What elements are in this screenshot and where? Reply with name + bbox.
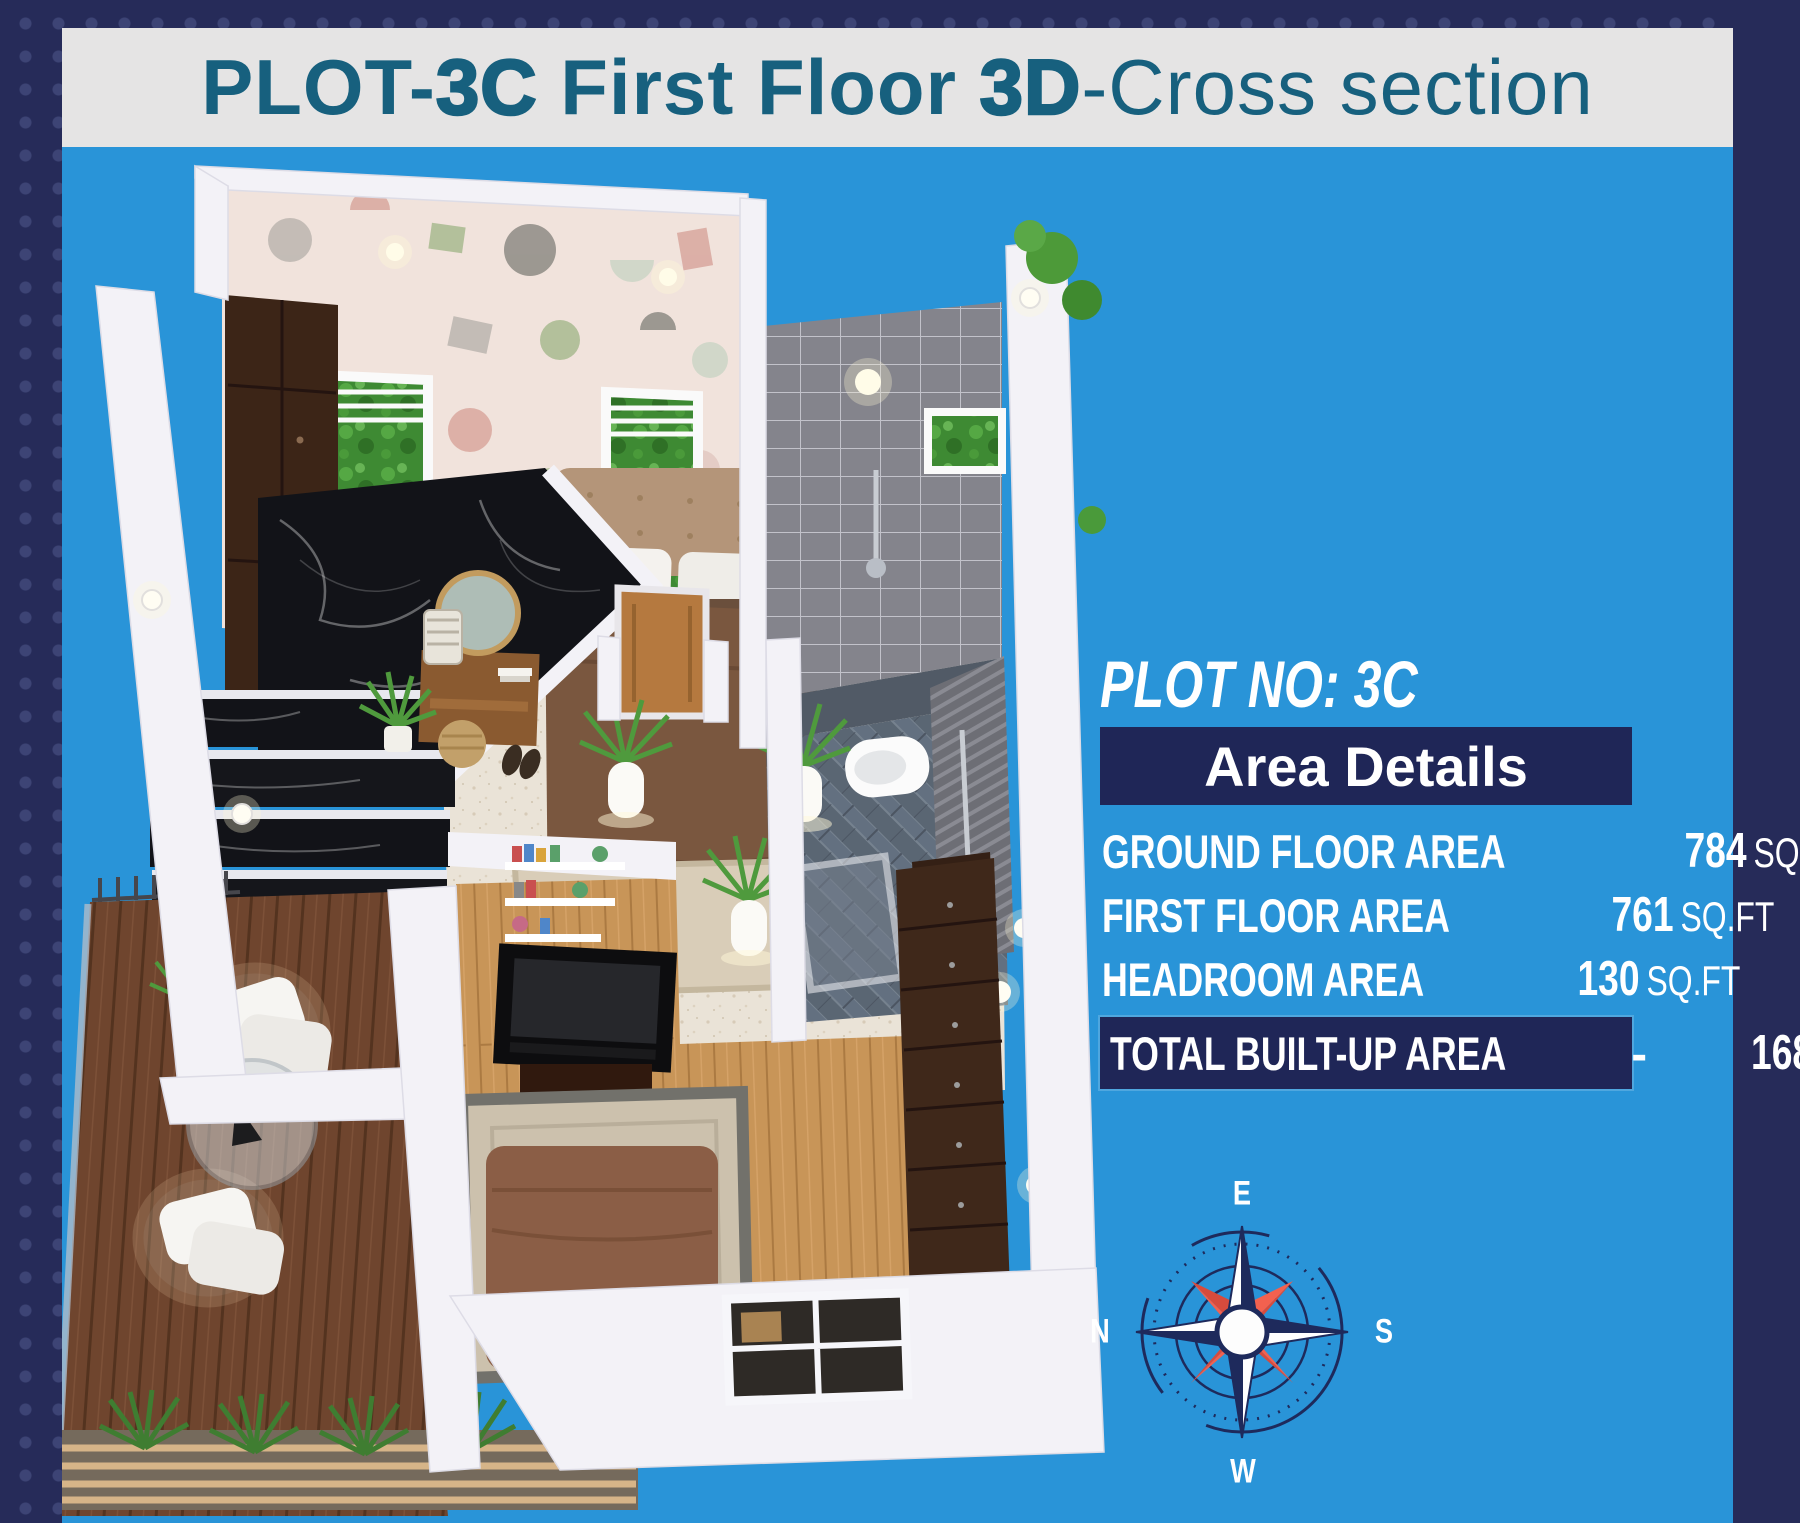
top-border	[0, 0, 1800, 28]
basket-icon	[438, 720, 486, 768]
plot-number-heading: PLOT NO: 3C	[1100, 645, 1632, 723]
poster: PLOT-3C First Floor 3D-Cross section PLO…	[0, 0, 1800, 1523]
door-frame	[598, 636, 620, 720]
area-details-panel: PLOT NO: 3C Area Details GROUND FLOOR AR…	[1100, 645, 1632, 1089]
title-3d: 3D	[980, 43, 1082, 131]
glass-door	[794, 856, 902, 990]
total-dash: -	[1631, 1026, 1647, 1081]
compass-south-label: S	[1375, 1313, 1393, 1352]
area-row-label: GROUND FLOOR AREA	[1102, 824, 1506, 879]
wood-door	[618, 588, 706, 716]
total-label: TOTAL BUILT-UP AREA	[1110, 1026, 1506, 1081]
area-row-first-floor: FIRST FLOOR AREA 761SQ.FT	[1100, 883, 1632, 947]
right-outer-wall	[1006, 240, 1096, 1300]
table-lamp-icon	[424, 610, 462, 664]
compass-rose-icon	[1112, 1202, 1372, 1462]
left-border	[0, 0, 62, 1523]
title-plot-number: 3C	[436, 43, 538, 131]
area-row-value: 784SQ.FT	[1684, 823, 1800, 879]
area-row-value: 761SQ.FT	[1611, 887, 1774, 943]
area-row-label: HEADROOM AREA	[1102, 952, 1424, 1007]
area-row-total: TOTAL BUILT-UP AREA - 1681SQ.FT	[1100, 1017, 1632, 1089]
title-banner: PLOT-3C First Floor 3D-Cross section	[62, 28, 1733, 147]
area-row-ground-floor: GROUND FLOOR AREA 784SQ.FT	[1100, 819, 1632, 883]
right-border	[1733, 0, 1800, 1523]
sliding-window	[726, 1293, 907, 1401]
total-value: 1681SQ.FT	[1751, 1025, 1800, 1081]
compass-north-label: N	[1090, 1313, 1110, 1352]
page-title: PLOT-3C First Floor 3D-Cross section	[201, 42, 1594, 133]
compass-west-label: W	[1230, 1453, 1256, 1492]
wicker-chair	[138, 1174, 287, 1302]
title-plot: PLOT-	[201, 43, 436, 131]
compass-east-label: E	[1233, 1175, 1251, 1214]
area-row-headroom: HEADROOM AREA 130SQ.FT	[1100, 947, 1632, 1011]
title-floor: First Floor	[538, 43, 980, 131]
corridor-wall	[766, 638, 806, 1042]
title-cross-section: -Cross section	[1081, 43, 1593, 131]
bathroom-window	[928, 412, 1002, 470]
area-row-value: 130SQ.FT	[1577, 951, 1740, 1007]
tv	[493, 943, 677, 1072]
compass-rose: E S W N	[1112, 1202, 1372, 1462]
door-frame	[704, 640, 728, 722]
area-details-header: Area Details	[1100, 727, 1632, 805]
area-row-label: FIRST FLOOR AREA	[1102, 888, 1450, 943]
bathroom-divider-wall	[740, 198, 766, 748]
wardrobe	[896, 858, 1010, 1298]
